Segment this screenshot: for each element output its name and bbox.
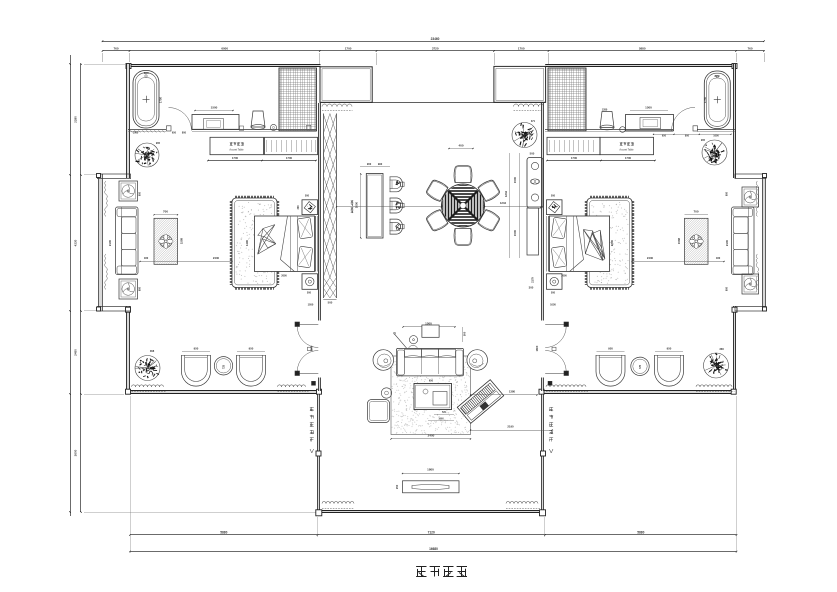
svg-text:180: 180: [144, 256, 149, 260]
svg-text:1814: 1814: [396, 201, 403, 205]
svg-text:2100: 2100: [108, 239, 112, 246]
svg-text:1050: 1050: [308, 303, 314, 307]
svg-text:520: 520: [442, 411, 447, 414]
svg-text:1234: 1234: [500, 201, 507, 205]
svg-text:500: 500: [307, 292, 312, 295]
svg-text:2430: 2430: [213, 256, 220, 260]
svg-text:2450: 2450: [74, 349, 78, 356]
svg-text:600: 600: [726, 286, 729, 291]
svg-text:23460: 23460: [431, 37, 440, 41]
svg-text:700: 700: [693, 210, 698, 214]
svg-text:1800: 1800: [535, 345, 539, 351]
svg-text:950: 950: [194, 347, 199, 351]
svg-text:500: 500: [551, 292, 556, 295]
svg-text:1500: 1500: [513, 176, 517, 183]
svg-text:6000: 6000: [221, 47, 228, 51]
svg-text:600: 600: [139, 286, 142, 291]
svg-text:2179: 2179: [531, 277, 535, 283]
svg-text:368: 368: [719, 347, 724, 351]
svg-text:800: 800: [685, 134, 690, 137]
svg-text:1800: 1800: [427, 468, 434, 472]
svg-text:500: 500: [551, 195, 556, 198]
svg-text:650: 650: [172, 132, 177, 135]
svg-text:1500: 1500: [645, 106, 652, 110]
svg-text:600: 600: [139, 191, 142, 196]
svg-text:2100: 2100: [725, 239, 729, 246]
svg-text:1750: 1750: [159, 96, 163, 103]
svg-text:180: 180: [716, 256, 721, 260]
svg-text:500: 500: [328, 301, 333, 305]
svg-text:500: 500: [530, 152, 535, 156]
svg-text:2280: 2280: [74, 116, 78, 123]
svg-text:1060: 1060: [438, 417, 444, 420]
svg-text:1500: 1500: [513, 229, 517, 236]
svg-text:725: 725: [639, 364, 642, 369]
svg-text:1700: 1700: [286, 156, 293, 160]
svg-text:2000: 2000: [281, 275, 287, 278]
svg-text:4230: 4230: [74, 239, 78, 246]
svg-text:725: 725: [223, 364, 226, 369]
svg-text:760: 760: [747, 47, 752, 51]
svg-text:950: 950: [249, 347, 254, 351]
svg-text:1400: 1400: [245, 239, 249, 246]
svg-text:1280: 1280: [602, 109, 608, 112]
svg-text:1800: 1800: [310, 345, 314, 351]
svg-text:1500: 1500: [211, 106, 218, 110]
svg-text:800: 800: [714, 74, 719, 78]
svg-text:2430: 2430: [647, 256, 654, 260]
svg-text:600: 600: [726, 191, 729, 196]
svg-text:1700: 1700: [571, 156, 578, 160]
svg-text:1000: 1000: [713, 134, 719, 137]
svg-text:650: 650: [429, 379, 434, 382]
svg-text:965: 965: [701, 139, 706, 142]
svg-text:16680: 16680: [429, 547, 438, 551]
svg-text:1800: 1800: [610, 239, 614, 246]
svg-text:1700: 1700: [625, 156, 632, 160]
svg-text:5880: 5880: [220, 531, 227, 535]
svg-text:1750: 1750: [703, 96, 707, 103]
svg-text:500: 500: [463, 331, 467, 336]
svg-text:371: 371: [531, 120, 536, 123]
svg-text:500: 500: [305, 195, 310, 198]
svg-text:1234: 1234: [504, 190, 508, 197]
svg-text:1700: 1700: [232, 156, 239, 160]
svg-text:2000: 2000: [561, 275, 567, 278]
svg-text:7120: 7120: [428, 531, 435, 535]
svg-text:800: 800: [182, 132, 187, 135]
svg-text:5880: 5880: [639, 47, 646, 51]
svg-text:Accent Table: Accent Table: [229, 148, 244, 151]
svg-text:2190: 2190: [507, 424, 514, 428]
svg-text:965: 965: [156, 142, 161, 145]
svg-text:700: 700: [163, 210, 168, 214]
svg-text:300: 300: [529, 286, 534, 290]
svg-text:400: 400: [458, 144, 463, 148]
svg-text:760: 760: [113, 47, 118, 51]
svg-text:1588: 1588: [180, 237, 184, 244]
svg-text:2000: 2000: [355, 201, 359, 208]
svg-text:950: 950: [667, 347, 672, 351]
svg-text:3720: 3720: [432, 47, 439, 51]
svg-text:990: 990: [378, 162, 383, 166]
svg-text:5880: 5880: [637, 531, 644, 535]
svg-text:1700: 1700: [345, 47, 352, 51]
svg-text:3600: 3600: [74, 449, 78, 456]
svg-text:250: 250: [395, 484, 399, 489]
svg-text:1588: 1588: [677, 237, 681, 244]
svg-text:1050: 1050: [550, 303, 556, 307]
svg-text:650: 650: [662, 134, 667, 137]
svg-text:1700: 1700: [518, 47, 525, 51]
svg-text:950: 950: [608, 347, 613, 351]
svg-text:300: 300: [297, 205, 300, 210]
svg-text:Accent Table: Accent Table: [619, 148, 634, 151]
svg-text:900: 900: [367, 162, 372, 166]
svg-text:368: 368: [150, 349, 155, 353]
svg-text:800: 800: [144, 71, 149, 75]
svg-text:1060: 1060: [133, 132, 139, 135]
svg-text:2400: 2400: [428, 434, 435, 438]
svg-text:1380: 1380: [509, 390, 516, 394]
